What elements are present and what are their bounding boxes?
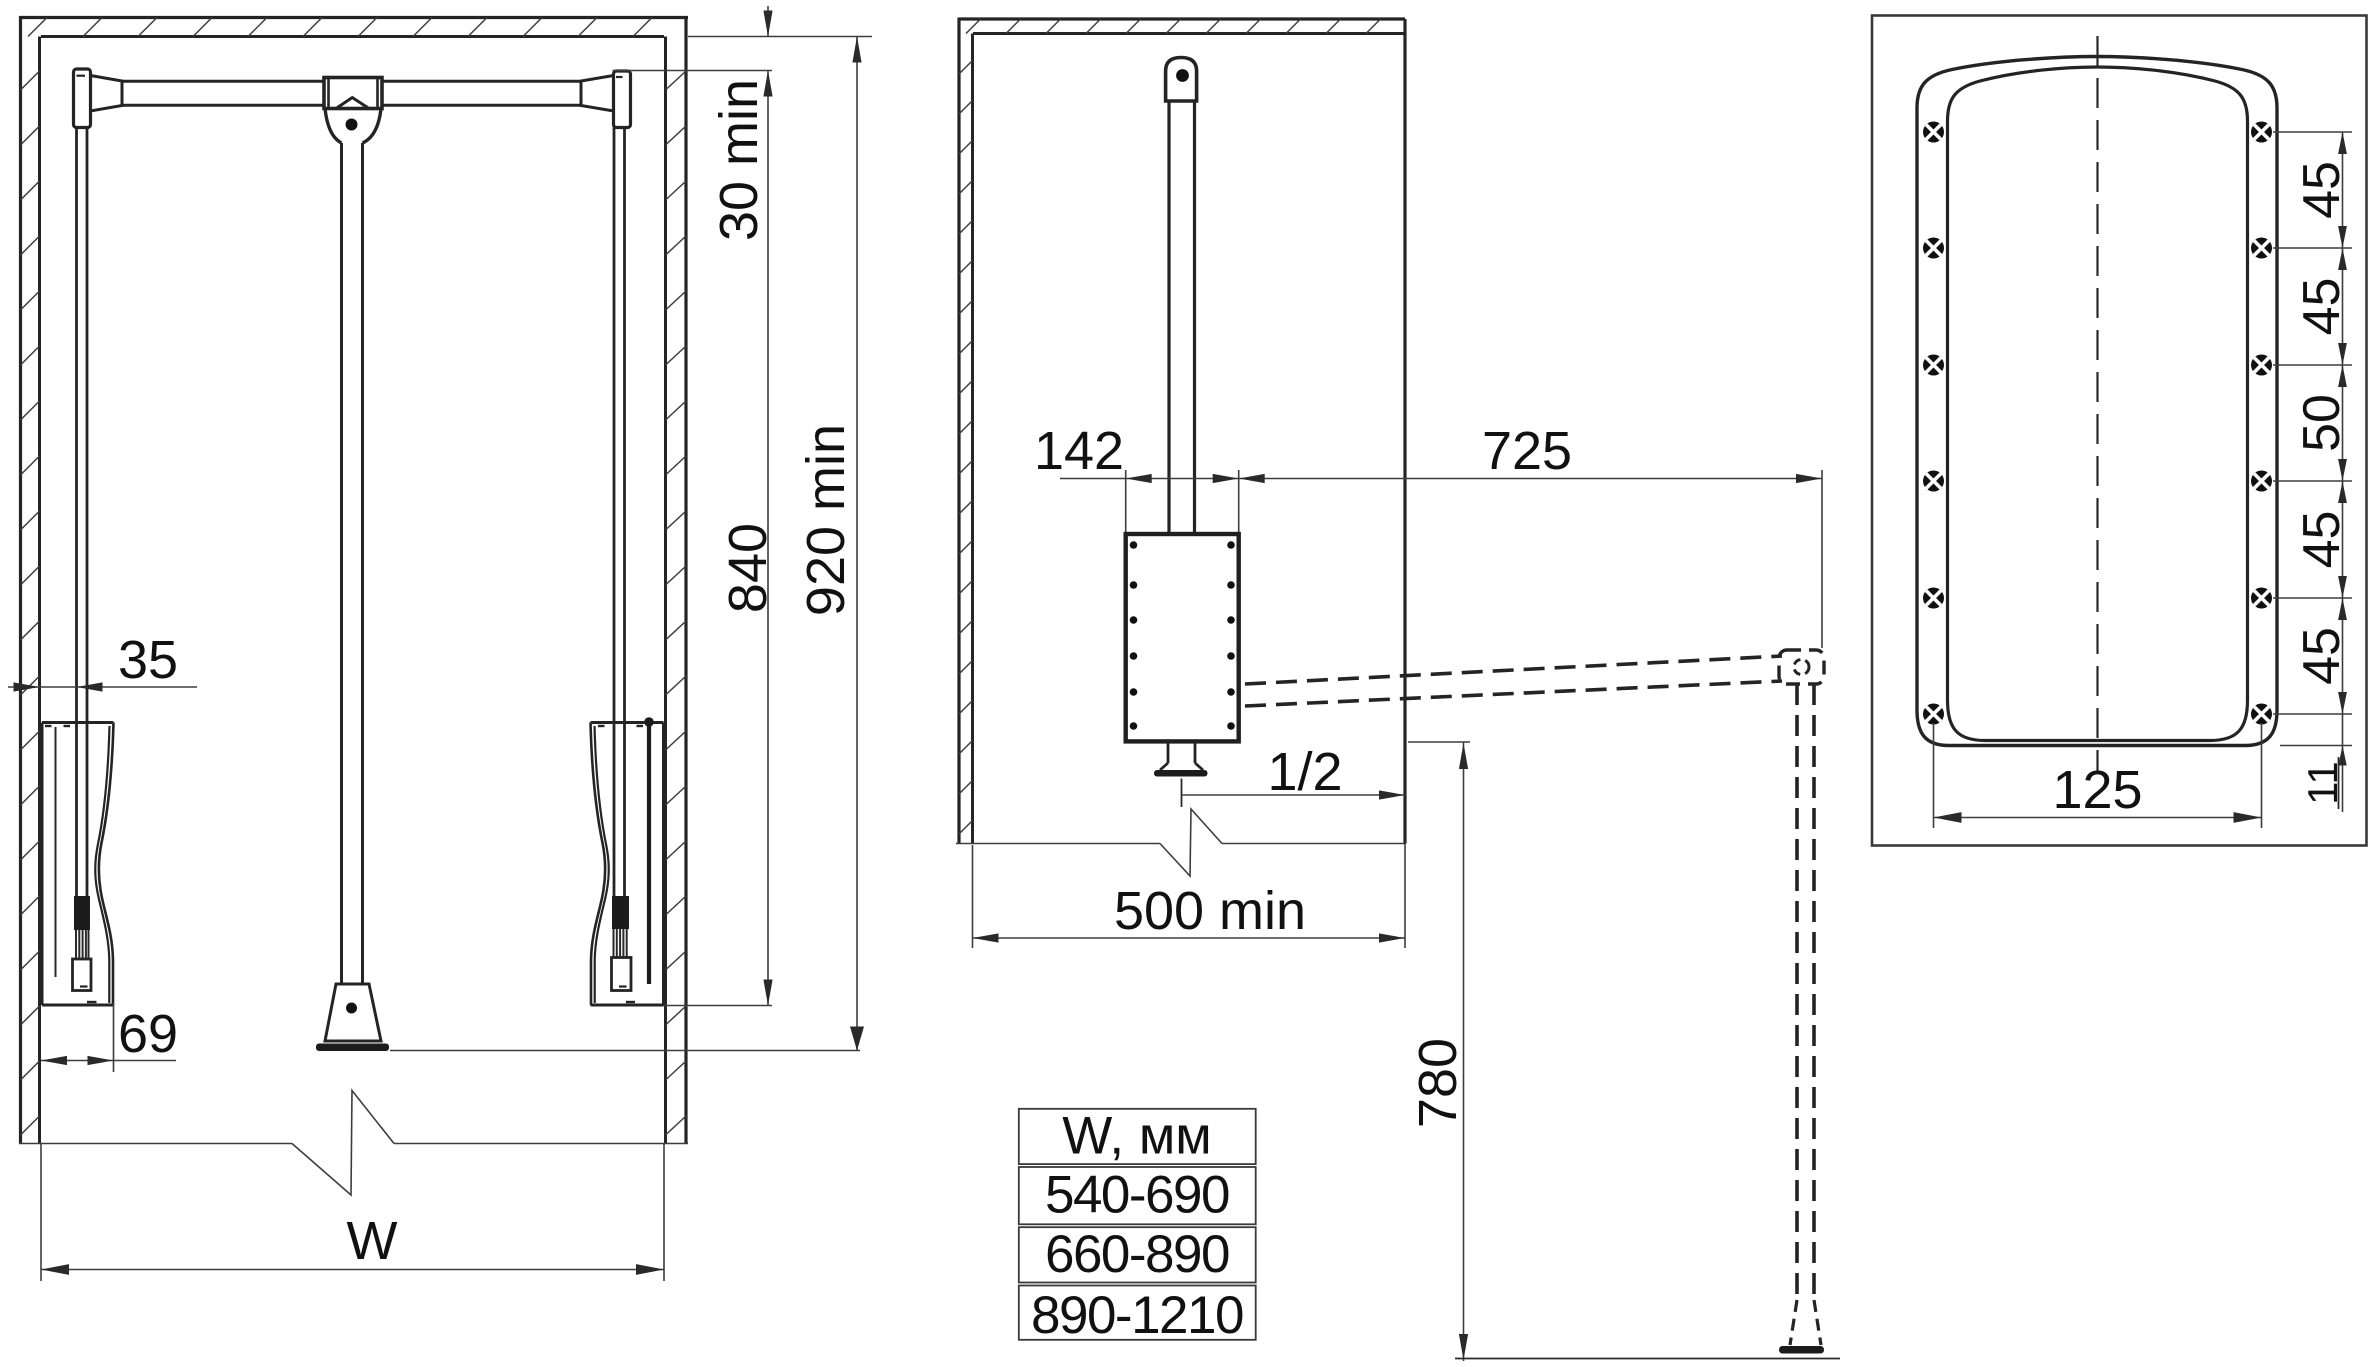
svg-text:30 min: 30 min — [709, 79, 769, 241]
svg-text:660-890: 660-890 — [1045, 1225, 1229, 1284]
svg-text:W, мм: W, мм — [1062, 1107, 1211, 1166]
svg-text:45: 45 — [2293, 161, 2351, 219]
svg-text:142: 142 — [1034, 421, 1124, 481]
svg-text:1/2: 1/2 — [1267, 742, 1342, 802]
svg-text:W: W — [347, 1211, 398, 1271]
svg-text:890-1210: 890-1210 — [1031, 1286, 1243, 1345]
svg-text:45: 45 — [2293, 278, 2351, 336]
svg-text:45: 45 — [2293, 627, 2351, 685]
svg-text:50: 50 — [2293, 394, 2351, 452]
svg-text:725: 725 — [1482, 421, 1572, 481]
svg-text:35: 35 — [118, 630, 178, 690]
svg-text:780: 780 — [1408, 1038, 1468, 1128]
svg-text:125: 125 — [2052, 760, 2142, 820]
svg-text:540-690: 540-690 — [1045, 1166, 1229, 1225]
svg-text:500 min: 500 min — [1114, 881, 1306, 941]
svg-text:920 min: 920 min — [796, 424, 856, 616]
svg-text:840: 840 — [718, 523, 778, 613]
svg-text:69: 69 — [118, 1004, 178, 1064]
svg-text:45: 45 — [2293, 511, 2351, 569]
